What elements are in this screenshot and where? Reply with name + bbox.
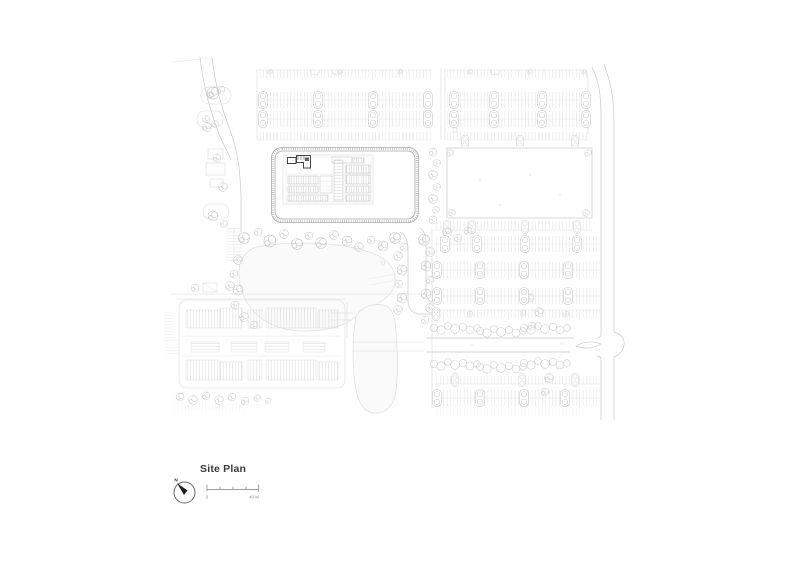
parking-island [490, 92, 499, 109]
tree [395, 280, 403, 288]
page-title: Site Plan [200, 463, 246, 475]
parking-island [441, 236, 450, 253]
title-block: Site Plan N 0 40 M [174, 463, 259, 503]
pad-outline [447, 148, 592, 218]
parking-island [564, 288, 573, 305]
parking-island [518, 373, 525, 387]
parking-island [433, 262, 442, 279]
parking-island [520, 390, 529, 407]
west-access-road [172, 57, 242, 262]
parking-island [490, 111, 499, 128]
tree [305, 232, 313, 240]
building-interior-plan [287, 157, 371, 201]
tree [394, 306, 403, 315]
tree [433, 207, 440, 214]
parking-island [476, 288, 485, 305]
hedge-row [430, 323, 480, 335]
parking-island [564, 262, 573, 279]
tree [583, 210, 590, 217]
east-pad [434, 135, 592, 234]
tree [191, 284, 199, 292]
tree [226, 282, 235, 291]
site-plan-drawing: Site Plan N 0 40 M [0, 0, 800, 565]
tree [265, 398, 271, 404]
parking-island [443, 220, 450, 234]
tree [397, 265, 407, 275]
tree [449, 210, 456, 217]
parking-island [259, 111, 268, 128]
tree [230, 270, 238, 278]
tree [228, 393, 236, 401]
tree [421, 316, 429, 324]
parking-island [571, 373, 578, 387]
tree [400, 243, 408, 251]
parking-island [451, 373, 458, 387]
tree [342, 236, 352, 246]
tree [419, 235, 430, 246]
tree [203, 116, 210, 123]
parking-island [314, 111, 323, 128]
parking-island [314, 92, 323, 109]
parking-island [573, 236, 582, 253]
parking-island [476, 390, 485, 407]
tree [202, 392, 210, 400]
hedge-row [520, 358, 570, 370]
pond-channel [353, 304, 397, 413]
tree [215, 396, 224, 405]
north-needle [177, 483, 188, 495]
parking-island [582, 92, 591, 109]
parking-island [573, 220, 580, 234]
main-building [272, 148, 441, 225]
parking-island [571, 135, 578, 149]
north-parking-east [447, 70, 591, 141]
parking-island [538, 111, 547, 128]
parking-island [461, 135, 468, 149]
parking-island [369, 111, 378, 128]
tree [585, 150, 592, 157]
site-plan-page: Site Plan N 0 40 M [0, 0, 800, 565]
tree [447, 150, 454, 157]
tree [241, 397, 249, 405]
tree [189, 396, 198, 405]
tree [429, 195, 438, 204]
tree [390, 233, 401, 244]
parking-island [259, 92, 268, 109]
tree [176, 393, 184, 401]
tree [429, 171, 438, 180]
tree [426, 248, 435, 257]
tree [434, 184, 441, 191]
parking-island [450, 111, 459, 128]
parking-island [520, 262, 529, 279]
parking-island [538, 92, 547, 109]
tree [426, 276, 434, 284]
tree [239, 233, 250, 244]
tree [280, 230, 289, 239]
parking-island [424, 111, 433, 128]
parking-island [450, 92, 459, 109]
parking-island [433, 390, 442, 407]
parking-island [521, 220, 528, 234]
tree [429, 148, 437, 156]
tree [394, 252, 403, 261]
tree [434, 160, 441, 167]
parking-island [432, 307, 439, 321]
tree [367, 236, 375, 244]
parking-island [561, 390, 570, 407]
parking-island [582, 111, 591, 128]
parking-island [424, 92, 433, 109]
north-parking-west [257, 68, 445, 140]
hedge-row [476, 326, 526, 338]
north-arrow: N [174, 478, 195, 504]
north-label: N [174, 478, 178, 483]
parking-island [369, 92, 378, 109]
tree [254, 228, 262, 236]
parking-island [476, 262, 485, 279]
tree [378, 241, 388, 251]
tree [397, 293, 407, 303]
south-parking [426, 228, 601, 416]
parking-island [473, 236, 482, 253]
parking-island [520, 288, 529, 305]
scale-zero-label: 0 [206, 495, 209, 500]
parking-island [521, 236, 530, 253]
hedge-row [476, 362, 526, 374]
tree [213, 154, 221, 162]
parking-island [433, 288, 442, 305]
hedge-row [430, 359, 480, 371]
tree [254, 395, 261, 402]
hedge-row [520, 323, 570, 335]
parking-island [516, 135, 523, 149]
building-core-plan [288, 156, 311, 169]
tree [330, 231, 339, 240]
tree [208, 211, 218, 221]
scale-bar: 0 40 M [206, 485, 259, 500]
scale-max-label: 40 M [249, 495, 259, 500]
tree [221, 221, 228, 228]
